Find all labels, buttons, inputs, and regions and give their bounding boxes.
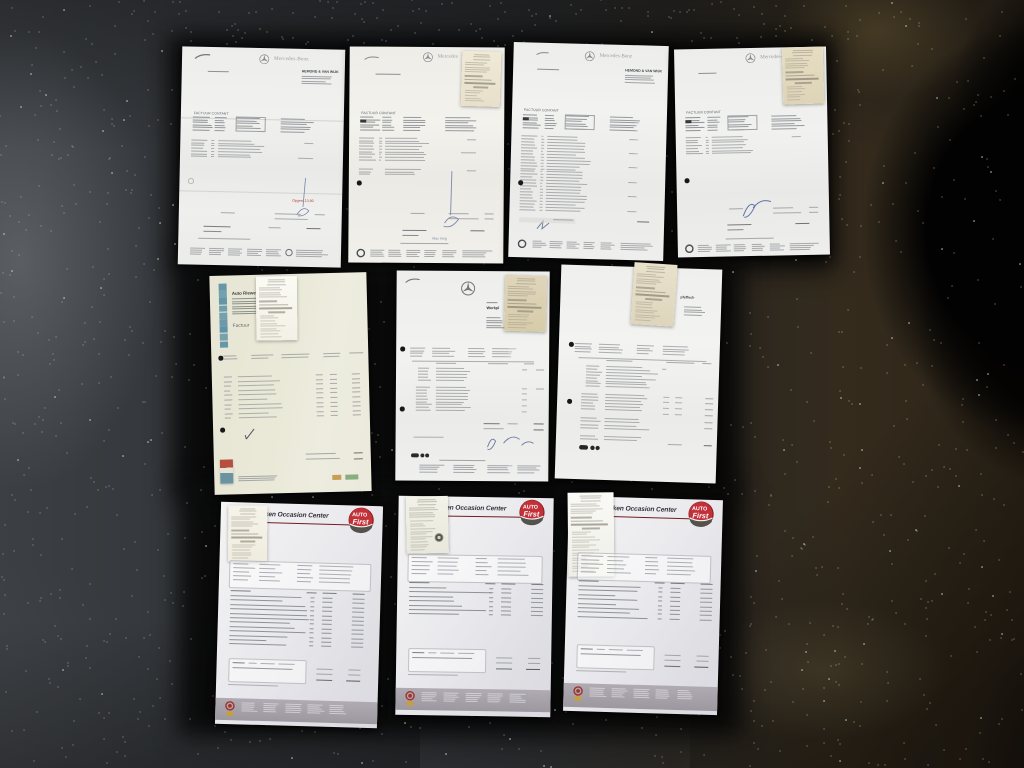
svg-text:First: First bbox=[523, 509, 540, 518]
svg-text:First: First bbox=[352, 517, 369, 526]
svg-text:First: First bbox=[692, 511, 709, 520]
